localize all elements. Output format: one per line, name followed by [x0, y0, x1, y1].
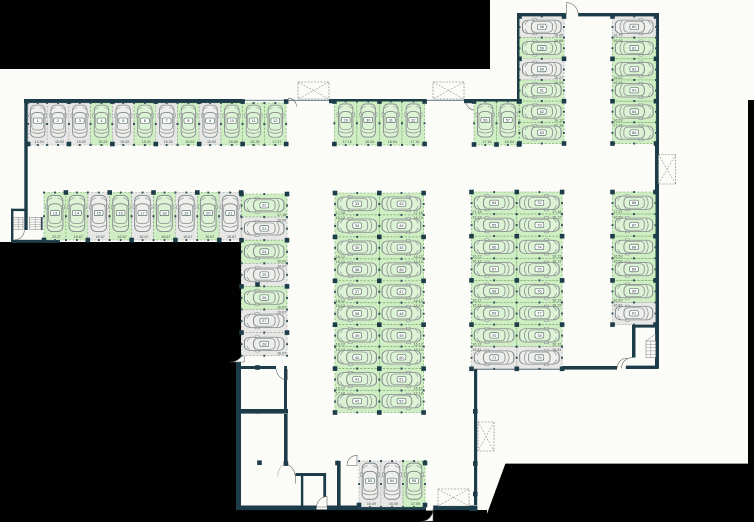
svg-text:50: 50	[399, 355, 404, 360]
svg-text:17.18: 17.18	[336, 211, 345, 215]
svg-text:69: 69	[492, 311, 497, 316]
svg-text:16.67: 16.67	[74, 235, 83, 239]
svg-text:16.12: 16.12	[472, 260, 481, 264]
svg-text:38: 38	[355, 311, 360, 316]
svg-text:16.12: 16.12	[336, 304, 345, 308]
svg-text:16.12: 16.12	[336, 348, 345, 352]
svg-text:16.67: 16.67	[161, 235, 170, 239]
svg-text:16.54: 16.54	[365, 140, 374, 144]
svg-text:16.12: 16.12	[336, 255, 345, 259]
svg-text:17: 17	[140, 210, 145, 215]
svg-text:21: 21	[228, 210, 233, 215]
svg-text:16.81: 16.81	[613, 304, 622, 308]
svg-text:16.12: 16.12	[414, 255, 423, 259]
svg-text:16.67: 16.67	[205, 235, 214, 239]
svg-text:16.75: 16.75	[613, 34, 622, 38]
svg-text:16.81: 16.81	[552, 348, 561, 352]
svg-text:27: 27	[262, 318, 267, 323]
svg-text:86: 86	[632, 200, 637, 205]
svg-text:70: 70	[492, 333, 497, 338]
svg-text:16.86: 16.86	[229, 140, 238, 144]
svg-text:63: 63	[540, 130, 545, 135]
svg-text:60: 60	[540, 67, 545, 72]
svg-text:42: 42	[355, 399, 360, 404]
svg-text:22: 22	[262, 203, 267, 208]
svg-text:16.63: 16.63	[277, 259, 286, 263]
svg-text:17.16: 17.16	[482, 140, 491, 144]
svg-text:87: 87	[632, 222, 637, 227]
svg-text:90: 90	[632, 289, 637, 294]
svg-text:36: 36	[355, 267, 360, 272]
svg-text:71: 71	[492, 355, 497, 360]
svg-text:15.52: 15.52	[142, 140, 151, 144]
svg-text:14.04: 14.04	[35, 140, 44, 144]
svg-text:17.18: 17.18	[277, 213, 286, 217]
svg-text:39: 39	[355, 333, 360, 338]
svg-text:17.18: 17.18	[552, 210, 561, 214]
svg-text:78: 78	[537, 333, 542, 338]
svg-text:17.18: 17.18	[336, 392, 345, 396]
svg-text:51: 51	[399, 377, 404, 382]
svg-text:16.53: 16.53	[554, 81, 563, 85]
svg-text:16.53: 16.53	[613, 81, 622, 85]
svg-text:12: 12	[273, 118, 278, 123]
svg-text:73: 73	[537, 222, 542, 227]
svg-text:16.67: 16.67	[277, 306, 286, 310]
svg-text:20.27: 20.27	[52, 235, 61, 239]
svg-text:75: 75	[537, 267, 542, 272]
svg-text:16.12: 16.12	[336, 299, 345, 303]
svg-text:16.12: 16.12	[472, 299, 481, 303]
svg-text:80: 80	[632, 24, 637, 29]
svg-text:16.20: 16.20	[613, 299, 622, 303]
svg-text:15: 15	[97, 210, 102, 215]
svg-text:16.12: 16.12	[414, 216, 423, 220]
svg-text:61: 61	[540, 88, 545, 93]
svg-text:15.52: 15.52	[55, 140, 64, 144]
svg-text:17.37: 17.37	[272, 140, 281, 144]
svg-text:15.52: 15.52	[77, 140, 86, 144]
svg-text:16.67: 16.67	[277, 311, 286, 315]
svg-text:67: 67	[492, 267, 497, 272]
svg-text:35: 35	[355, 245, 360, 250]
svg-text:16.53: 16.53	[613, 260, 622, 264]
svg-text:32: 32	[411, 118, 416, 123]
svg-text:16.12: 16.12	[472, 304, 481, 308]
svg-text:89: 89	[632, 267, 637, 272]
svg-text:16.53: 16.53	[613, 215, 622, 219]
svg-text:16.12: 16.12	[414, 299, 423, 303]
svg-text:20: 20	[206, 210, 211, 215]
svg-text:37: 37	[355, 289, 360, 294]
svg-text:16.00: 16.00	[277, 218, 286, 222]
svg-text:16.12: 16.12	[414, 387, 423, 391]
svg-text:26: 26	[262, 295, 267, 300]
svg-text:16.12: 16.12	[552, 260, 561, 264]
svg-text:88: 88	[632, 244, 637, 249]
svg-text:77: 77	[537, 311, 542, 316]
svg-text:16.09: 16.09	[389, 502, 398, 506]
svg-text:16.53: 16.53	[613, 39, 622, 43]
svg-text:62: 62	[540, 109, 545, 114]
svg-text:16.67: 16.67	[117, 235, 126, 239]
svg-text:40: 40	[355, 355, 360, 360]
svg-text:16.12: 16.12	[554, 118, 563, 122]
svg-text:16.12: 16.12	[414, 304, 423, 308]
svg-text:17.37: 17.37	[613, 124, 622, 128]
svg-text:31: 31	[389, 118, 394, 123]
svg-text:33: 33	[355, 201, 360, 206]
svg-text:23: 23	[262, 226, 267, 231]
svg-text:34: 34	[355, 223, 360, 228]
svg-text:16.12: 16.12	[552, 254, 561, 258]
svg-text:16.12: 16.12	[472, 343, 481, 347]
svg-text:16.12: 16.12	[552, 215, 561, 219]
svg-text:56: 56	[483, 118, 488, 123]
svg-text:16.12: 16.12	[414, 343, 423, 347]
svg-text:25: 25	[262, 272, 267, 277]
svg-text:17.18: 17.18	[414, 211, 423, 215]
svg-text:18: 18	[162, 210, 167, 215]
svg-text:29: 29	[343, 118, 348, 123]
svg-text:16.67: 16.67	[277, 265, 286, 269]
svg-text:53: 53	[368, 478, 373, 483]
svg-text:15.52: 15.52	[120, 140, 129, 144]
svg-text:82: 82	[632, 67, 637, 72]
svg-text:16.12: 16.12	[414, 260, 423, 264]
svg-text:66: 66	[492, 244, 497, 249]
svg-text:16.67: 16.67	[227, 235, 236, 239]
svg-text:14: 14	[75, 210, 80, 215]
svg-text:44: 44	[399, 223, 404, 228]
svg-text:16.53: 16.53	[613, 254, 622, 258]
svg-text:16.09: 16.09	[367, 502, 376, 506]
svg-text:16.67: 16.67	[139, 235, 148, 239]
svg-text:16.54: 16.54	[505, 140, 514, 144]
svg-text:76: 76	[537, 289, 542, 294]
svg-text:16.53: 16.53	[613, 76, 622, 80]
svg-text:30: 30	[366, 118, 371, 123]
svg-text:52: 52	[399, 399, 404, 404]
svg-text:16.12: 16.12	[336, 216, 345, 220]
svg-text:13: 13	[53, 210, 58, 215]
svg-text:68: 68	[492, 289, 497, 294]
svg-text:17.18: 17.18	[414, 392, 423, 396]
svg-text:46: 46	[399, 267, 404, 272]
svg-text:91: 91	[632, 311, 637, 316]
svg-text:65: 65	[492, 222, 497, 227]
svg-text:16.12: 16.12	[552, 343, 561, 347]
svg-text:15.52: 15.52	[185, 140, 194, 144]
svg-text:16.35: 16.35	[250, 140, 259, 144]
svg-text:16.27: 16.27	[554, 76, 563, 80]
svg-text:57: 57	[506, 118, 511, 123]
svg-text:43: 43	[399, 201, 404, 206]
svg-text:16.53: 16.53	[613, 118, 622, 122]
svg-text:85: 85	[632, 130, 637, 135]
svg-text:84: 84	[632, 109, 637, 114]
svg-text:15.52: 15.52	[98, 140, 107, 144]
svg-text:16.12: 16.12	[552, 304, 561, 308]
svg-text:16.12: 16.12	[336, 343, 345, 347]
svg-text:15.52: 15.52	[164, 140, 173, 144]
svg-text:16.81: 16.81	[472, 348, 481, 352]
svg-text:16.54: 16.54	[388, 140, 397, 144]
svg-text:24: 24	[262, 249, 267, 254]
svg-text:81: 81	[632, 45, 637, 50]
svg-text:16.67: 16.67	[183, 235, 192, 239]
svg-text:55: 55	[412, 478, 417, 483]
svg-text:16.12: 16.12	[336, 260, 345, 264]
svg-text:16.66: 16.66	[554, 39, 563, 43]
svg-text:49: 49	[399, 333, 404, 338]
svg-text:79: 79	[537, 355, 542, 360]
svg-text:41: 41	[355, 377, 360, 382]
svg-text:16.65: 16.65	[554, 34, 563, 38]
svg-text:83: 83	[632, 88, 637, 93]
svg-text:48: 48	[399, 311, 404, 316]
svg-text:17.18: 17.18	[472, 210, 481, 214]
svg-text:47: 47	[399, 289, 404, 294]
svg-text:16.07: 16.07	[277, 352, 286, 356]
svg-text:16.12: 16.12	[472, 215, 481, 219]
svg-text:72: 72	[537, 200, 542, 205]
svg-text:15.52: 15.52	[207, 140, 216, 144]
svg-text:16: 16	[118, 210, 123, 215]
svg-text:17.09: 17.09	[411, 502, 420, 506]
svg-text:59: 59	[540, 45, 545, 50]
svg-text:45: 45	[399, 245, 404, 250]
svg-text:17.16: 17.16	[410, 140, 419, 144]
svg-text:54: 54	[390, 478, 395, 483]
svg-text:16.12: 16.12	[552, 299, 561, 303]
svg-text:64: 64	[492, 200, 497, 205]
svg-text:10: 10	[230, 118, 235, 123]
svg-text:16.12: 16.12	[336, 387, 345, 391]
svg-text:16.12: 16.12	[414, 348, 423, 352]
svg-text:28: 28	[262, 341, 267, 346]
svg-text:19: 19	[184, 210, 189, 215]
svg-text:17.37: 17.37	[613, 210, 622, 214]
svg-text:16.67: 16.67	[96, 235, 105, 239]
svg-text:74: 74	[537, 244, 542, 249]
svg-text:58: 58	[540, 24, 545, 29]
svg-text:17.16: 17.16	[343, 140, 352, 144]
svg-text:17.18: 17.18	[554, 124, 563, 128]
svg-text:16.12: 16.12	[472, 254, 481, 258]
